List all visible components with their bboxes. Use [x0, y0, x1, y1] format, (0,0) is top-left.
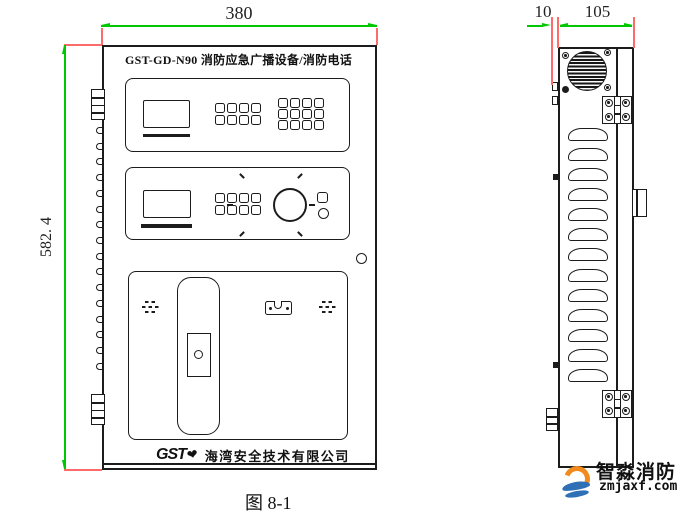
front-hinge-bottom — [91, 394, 105, 425]
telephone-round-button — [318, 208, 329, 219]
side-speaker — [567, 51, 607, 91]
louver-end — [96, 331, 102, 338]
keypad-button — [251, 103, 261, 113]
keypad-button — [278, 98, 288, 108]
dim-width-label: 380 — [212, 4, 266, 22]
dim-arrow-right — [368, 23, 377, 27]
keypad-button — [251, 193, 261, 203]
keypad-button — [302, 120, 312, 130]
keypad-button — [239, 103, 249, 113]
louver-end — [96, 284, 102, 291]
louver-slot — [568, 148, 608, 161]
broadcast-display-underline — [143, 134, 190, 137]
ext-line-door-right — [557, 17, 559, 48]
dim-arrow-up — [62, 45, 66, 54]
speaker-screw-br — [604, 84, 611, 91]
louver-end — [96, 174, 102, 181]
telephone-function-keypad — [215, 193, 261, 215]
dim-depth-label: 105 — [575, 3, 620, 20]
speaker-vent-left-icon — [141, 301, 161, 313]
telephone-display-underline — [141, 224, 192, 228]
side-hinge-bottom — [602, 390, 632, 418]
louver-end — [96, 363, 102, 370]
broadcast-numeric-keypad — [278, 98, 324, 130]
louver-slot — [568, 349, 608, 362]
ext-line-height-bottom — [64, 469, 102, 471]
handset-hook — [265, 301, 292, 315]
broadcast-function-keypad — [215, 103, 261, 125]
louver-end — [96, 316, 102, 323]
telephone-square-button — [317, 192, 328, 203]
keypad-button — [302, 109, 312, 119]
handset-hook-screw-left — [269, 307, 272, 310]
brand-row: GST ❤ 海湾安全技术有限公司 — [156, 445, 366, 465]
louver-end — [96, 206, 102, 213]
speaker-vent-right-icon — [318, 301, 338, 313]
figure-caption: 图 8-1 — [245, 489, 292, 515]
keypad-button — [215, 193, 225, 203]
front-edge-louver-ends — [96, 127, 103, 370]
volume-knob — [273, 188, 307, 222]
broadcast-display — [143, 100, 190, 128]
side-nub-mid — [553, 174, 558, 180]
louver-end — [96, 237, 102, 244]
ext-line-width-left — [101, 28, 103, 45]
louver-slot — [568, 369, 608, 382]
ext-line-door-left — [551, 17, 553, 85]
speaker-screw-tl — [562, 52, 569, 59]
louver-end — [96, 190, 102, 197]
side-wall-bracket — [633, 189, 647, 217]
gst-logo-leaf-icon: ❤ — [185, 446, 199, 464]
watermark: 智淼消防 zmjaxf.com — [561, 455, 696, 500]
louver-end — [96, 221, 102, 228]
louver-end — [96, 268, 102, 275]
dim-arrow-depth-right — [624, 23, 633, 27]
dim-line-height — [64, 45, 66, 469]
keypad-button — [239, 115, 249, 125]
louver-end — [96, 300, 102, 307]
keypad-button — [251, 115, 261, 125]
louver-slot — [568, 188, 608, 201]
keypad-button — [227, 205, 237, 215]
watermark-logo-icon — [561, 466, 594, 499]
keypad-button — [215, 205, 225, 215]
device-title: GST-GD-N90 消防应急广播设备/消防电话 — [125, 51, 365, 68]
louver-end — [96, 253, 102, 260]
dim-arrow-door — [542, 23, 551, 27]
dim-arrow-depth-left — [559, 23, 568, 27]
dim-arrow-left — [101, 23, 110, 27]
side-hinge-top — [602, 96, 632, 124]
telephone-display — [143, 190, 191, 218]
keypad-button — [227, 115, 237, 125]
louver-slot — [568, 309, 608, 322]
keypad-button — [290, 98, 300, 108]
keypad-button — [278, 109, 288, 119]
gst-logo: GST — [156, 446, 186, 464]
louver-slot — [568, 329, 608, 342]
speaker-screw-tr — [604, 49, 611, 56]
ext-line-height-top — [64, 44, 102, 46]
louver-slot — [568, 289, 608, 302]
louver-end — [96, 158, 102, 165]
speaker-screw-bl — [562, 86, 569, 93]
keypad-button — [278, 120, 288, 130]
dim-line-depth — [560, 25, 632, 27]
keypad-button — [227, 103, 237, 113]
louver-slot — [568, 269, 608, 282]
side-latch-top-1 — [552, 82, 558, 91]
keypad-button — [215, 103, 225, 113]
handset-latch-hole — [194, 350, 203, 359]
keypad-button — [215, 115, 225, 125]
dim-line-width — [101, 25, 377, 27]
louver-slot — [568, 248, 608, 261]
keypad-button — [290, 120, 300, 130]
louver-slot — [568, 208, 608, 221]
keypad-button — [314, 120, 324, 130]
handset-hook-notch — [274, 301, 282, 310]
handset-hook-screw-right — [286, 307, 289, 310]
dim-line-door — [527, 25, 543, 27]
side-nub-low — [553, 362, 558, 368]
keypad-button — [302, 98, 312, 108]
louver-slot — [568, 128, 608, 141]
louver-slot — [568, 228, 608, 241]
louver-end — [96, 143, 102, 150]
door-lock-hole — [356, 253, 367, 264]
dim-height-label: 582. 4 — [39, 209, 55, 265]
keypad-button — [239, 193, 249, 203]
company-name: 海湾安全技术有限公司 — [205, 446, 350, 465]
watermark-site: zmjaxf.com — [599, 479, 677, 494]
front-hinge-top — [91, 89, 105, 120]
side-lock-handle — [546, 408, 558, 431]
dim-arrow-down — [62, 460, 66, 469]
ext-line-depth-right — [633, 17, 635, 48]
side-latch-top-2 — [552, 96, 558, 105]
louver-end — [96, 347, 102, 354]
keypad-button — [314, 98, 324, 108]
louver-slot — [568, 168, 608, 181]
keypad-button — [251, 205, 261, 215]
technical-drawing: GST-GD-N90 消防应急广播设备/消防电话 — [0, 0, 700, 519]
louver-end — [96, 127, 102, 134]
handset-door-panel — [128, 271, 348, 440]
keypad-button — [239, 205, 249, 215]
ext-line-width-right — [376, 28, 378, 45]
keypad-button — [314, 109, 324, 119]
side-louver-vents — [568, 128, 608, 382]
keypad-button — [227, 193, 237, 203]
keypad-button — [290, 109, 300, 119]
dim-door-label: 10 — [531, 3, 555, 20]
